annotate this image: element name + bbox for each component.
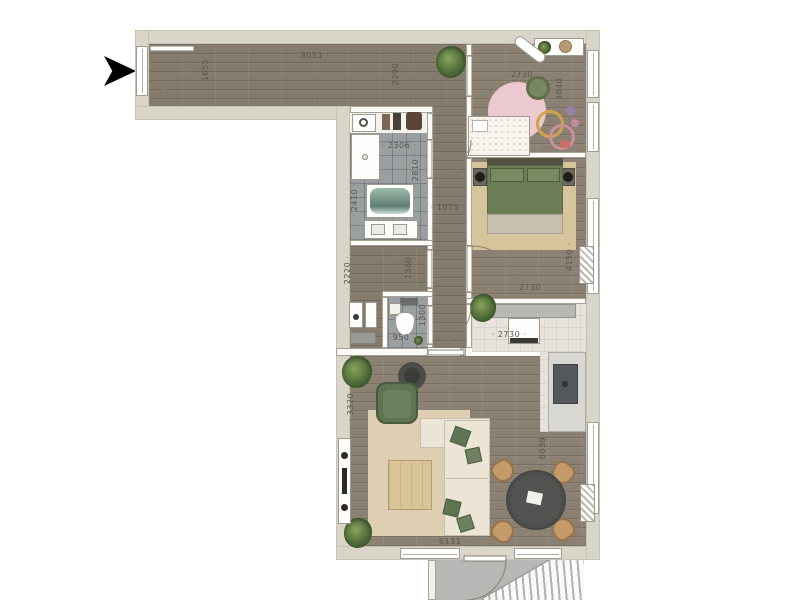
kids-toy-3 [560, 140, 570, 148]
shower-drain-icon [362, 154, 368, 160]
hall-cabinet-item [353, 314, 359, 320]
dim-hall-length: 8051 [282, 50, 342, 62]
dim-hall-lower-depth: 2220 [342, 243, 354, 303]
dim-wc-width: 950 [371, 332, 431, 344]
window-bottom-left [400, 548, 460, 559]
dim-kids-width: 2730 [492, 69, 552, 81]
dim-bathroom-left-depth: 2410 [349, 170, 361, 230]
radiator-bedroom [579, 246, 594, 284]
dim-living-right-depth: 6039 [537, 418, 549, 478]
bath-shelf-item-1 [382, 114, 390, 130]
window-kids-1 [587, 50, 599, 98]
nightstand-lamp-right [563, 172, 573, 182]
dim-hall-width: 1655 [200, 40, 212, 100]
wall-corridor-bottom [135, 106, 350, 120]
hall-door-leaf [427, 250, 432, 288]
wall-living-top-1 [336, 348, 428, 356]
washing-machine-door-icon [359, 118, 368, 127]
kids-desk-basket [559, 40, 572, 53]
stairwell-wall [428, 560, 436, 600]
dim-corridor-width: 1075 [418, 202, 478, 214]
staircase [482, 560, 584, 600]
entrance-door-frame [136, 46, 148, 96]
wc-shelf [400, 298, 418, 305]
wall-bathroom-right-1 [427, 113, 433, 140]
window-bottom-right [514, 548, 562, 559]
floor-plan: 1655 8051 2290 2730 3040 2306 2810 2410 … [0, 0, 800, 600]
bed-pillow-right [527, 168, 560, 182]
sink-right [393, 224, 407, 235]
dim-living-left-depth: 3320 [345, 374, 357, 434]
coffee-table [388, 460, 432, 510]
floor-hallway [433, 106, 466, 348]
bathtub-basin [370, 188, 410, 214]
dim-bedroom-width: 2730 [500, 282, 560, 294]
nightstand-lamp-left [475, 172, 485, 182]
dim-hall-lower-width: 1360 [403, 238, 415, 298]
dim-kids-depth: 3040 [554, 59, 566, 119]
entry-arrow-icon [104, 56, 136, 86]
bath-shelf-item-2 [393, 113, 401, 130]
stairwell-area [428, 560, 584, 600]
kids-bed-pillow [472, 120, 488, 132]
radiator-dining [580, 484, 595, 522]
bed-headboard [487, 158, 563, 165]
window-kids-2 [587, 102, 599, 152]
wall-corridor-kids-1 [466, 44, 472, 56]
kids-toy-1 [566, 106, 575, 115]
sideboard-item-1 [341, 452, 348, 459]
sideboard-item-3 [341, 504, 348, 511]
sofa-cushion-line [446, 478, 488, 479]
kitchen-faucet-icon [562, 381, 568, 387]
living-door-leaf [428, 350, 464, 355]
sofa-pillow-2 [465, 447, 483, 465]
dim-hall-depth: 2290 [390, 44, 402, 104]
dim-kitchen-width: 2730 [479, 329, 539, 341]
bath-shelf-item-3 [406, 112, 422, 130]
wall-living-top-2 [460, 348, 466, 356]
sink-left [371, 224, 385, 235]
bed-pillow-left [490, 168, 524, 182]
wall-bathroom-bottom [350, 240, 433, 246]
hall-cabinet-2 [365, 302, 377, 328]
dim-bedroom-depth: 4150 [564, 230, 576, 290]
kids-toy-2 [571, 119, 579, 127]
sideboard-item-2 [342, 468, 347, 494]
bed-blanket [487, 214, 563, 234]
kitchen-counter-top [484, 304, 576, 318]
dim-living-width: 6131 [420, 536, 480, 548]
dim-bathroom-depth: 2810 [410, 140, 422, 200]
armchair-seat [383, 390, 411, 418]
